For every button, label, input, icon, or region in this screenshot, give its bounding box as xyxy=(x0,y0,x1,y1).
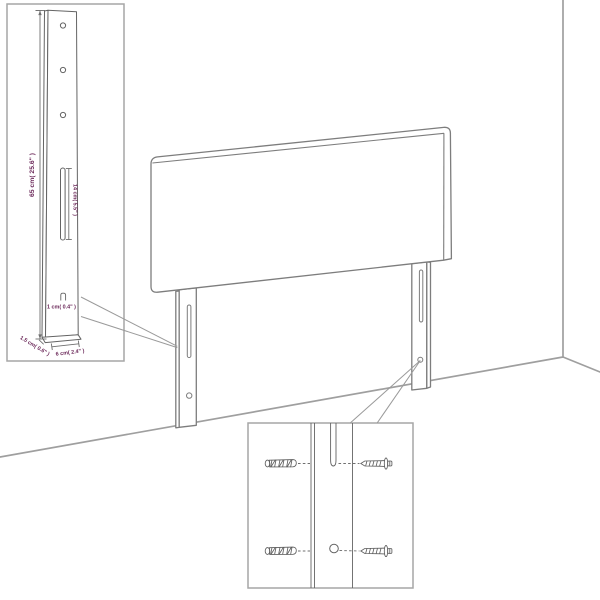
mounting-hole-icon xyxy=(60,67,65,72)
headboard xyxy=(151,127,451,427)
height-dimension-label: 65 cm( 25.6" ) xyxy=(29,153,36,197)
hook-dimension-label: 1 cm( 0.4" ) xyxy=(47,305,76,311)
right-inset-leader-line xyxy=(351,361,421,423)
hardware-detail-inset xyxy=(248,423,413,588)
mounting-hole-icon xyxy=(330,544,339,553)
left-leg-keyhole-slot xyxy=(187,305,191,358)
slot-dimension-label: 14 cm( 5.5" ) xyxy=(72,184,78,216)
headboard-panel xyxy=(151,127,451,292)
mounting-hole-icon xyxy=(60,23,65,28)
leg-detail-inset: 65 cm( 25.6" ) 14 cm( 5.5" ) 1 cm( 0.4" … xyxy=(7,4,124,361)
right-leg-side-face xyxy=(427,262,431,388)
right-inset-leader-line xyxy=(377,361,420,423)
diagram-canvas: 65 cm( 25.6" ) 14 cm( 5.5" ) 1 cm( 0.4" … xyxy=(0,0,600,600)
keyhole-slot-icon xyxy=(61,168,66,240)
left-leg-hole xyxy=(187,393,192,398)
right-leg-keyhole-slot xyxy=(419,270,422,322)
mounting-hole-icon xyxy=(60,112,65,117)
assembly-diagram: 65 cm( 25.6" ) 14 cm( 5.5" ) 1 cm( 0.4" … xyxy=(0,0,600,600)
leader-lines xyxy=(81,297,420,423)
floor-line-right xyxy=(563,357,600,372)
